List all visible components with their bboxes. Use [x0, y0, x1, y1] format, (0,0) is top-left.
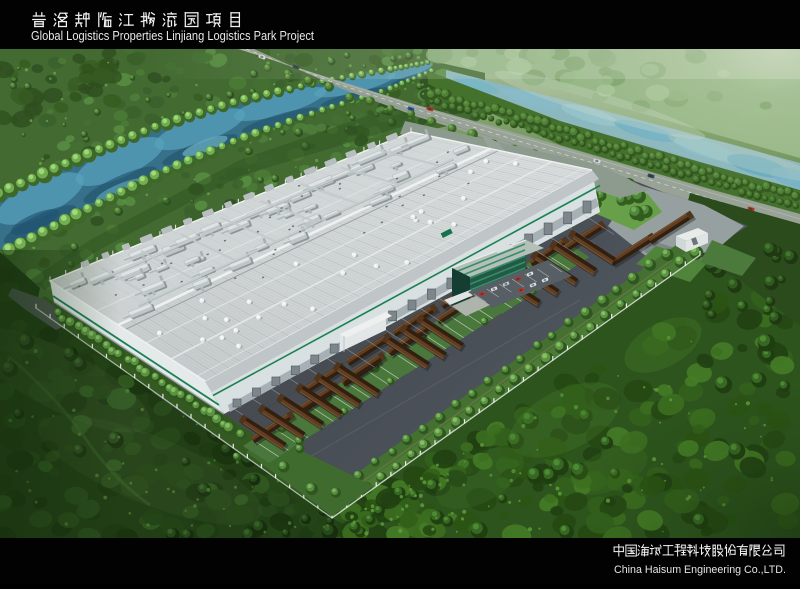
- svg-text:Global Logistics Properties Li: Global Logistics Properties Linjiang Log…: [31, 28, 314, 43]
- svg-text:China Haisum Engineering Co.,L: China Haisum Engineering Co.,LTD.: [614, 564, 786, 576]
